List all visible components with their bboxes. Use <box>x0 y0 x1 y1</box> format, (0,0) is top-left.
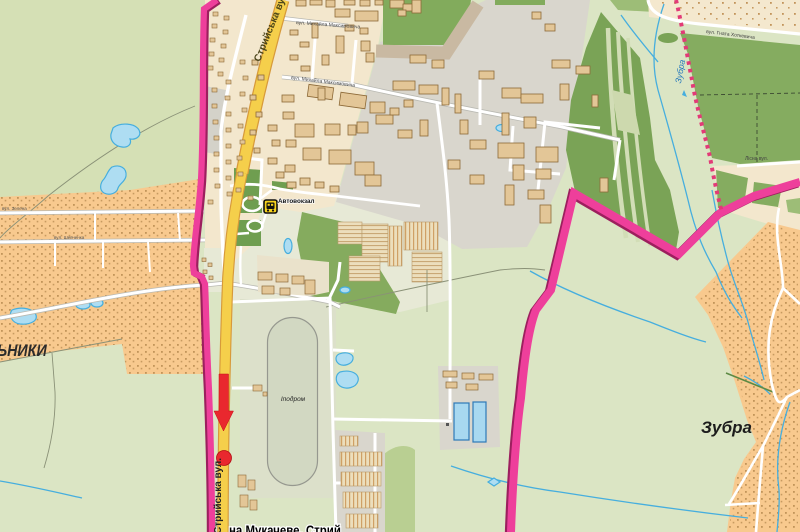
svg-text:Лісна вул.: Лісна вул. <box>745 156 768 162</box>
svg-text:Іподром: Іподром <box>281 395 306 403</box>
svg-text:Стрийська вул.: Стрийська вул. <box>213 458 224 532</box>
svg-text:Зубра: Зубра <box>701 418 752 437</box>
svg-text:на Мукачеве, Стрий: на Мукачеве, Стрий <box>229 523 341 532</box>
svg-text:вул. Зелена: вул. Зелена <box>2 206 27 211</box>
svg-text:вул. Шевченка: вул. Шевченка <box>54 235 85 240</box>
svg-text:Автовокзал: Автовокзал <box>278 198 315 205</box>
svg-text:ЬНИКИ: ЬНИКИ <box>0 342 47 360</box>
